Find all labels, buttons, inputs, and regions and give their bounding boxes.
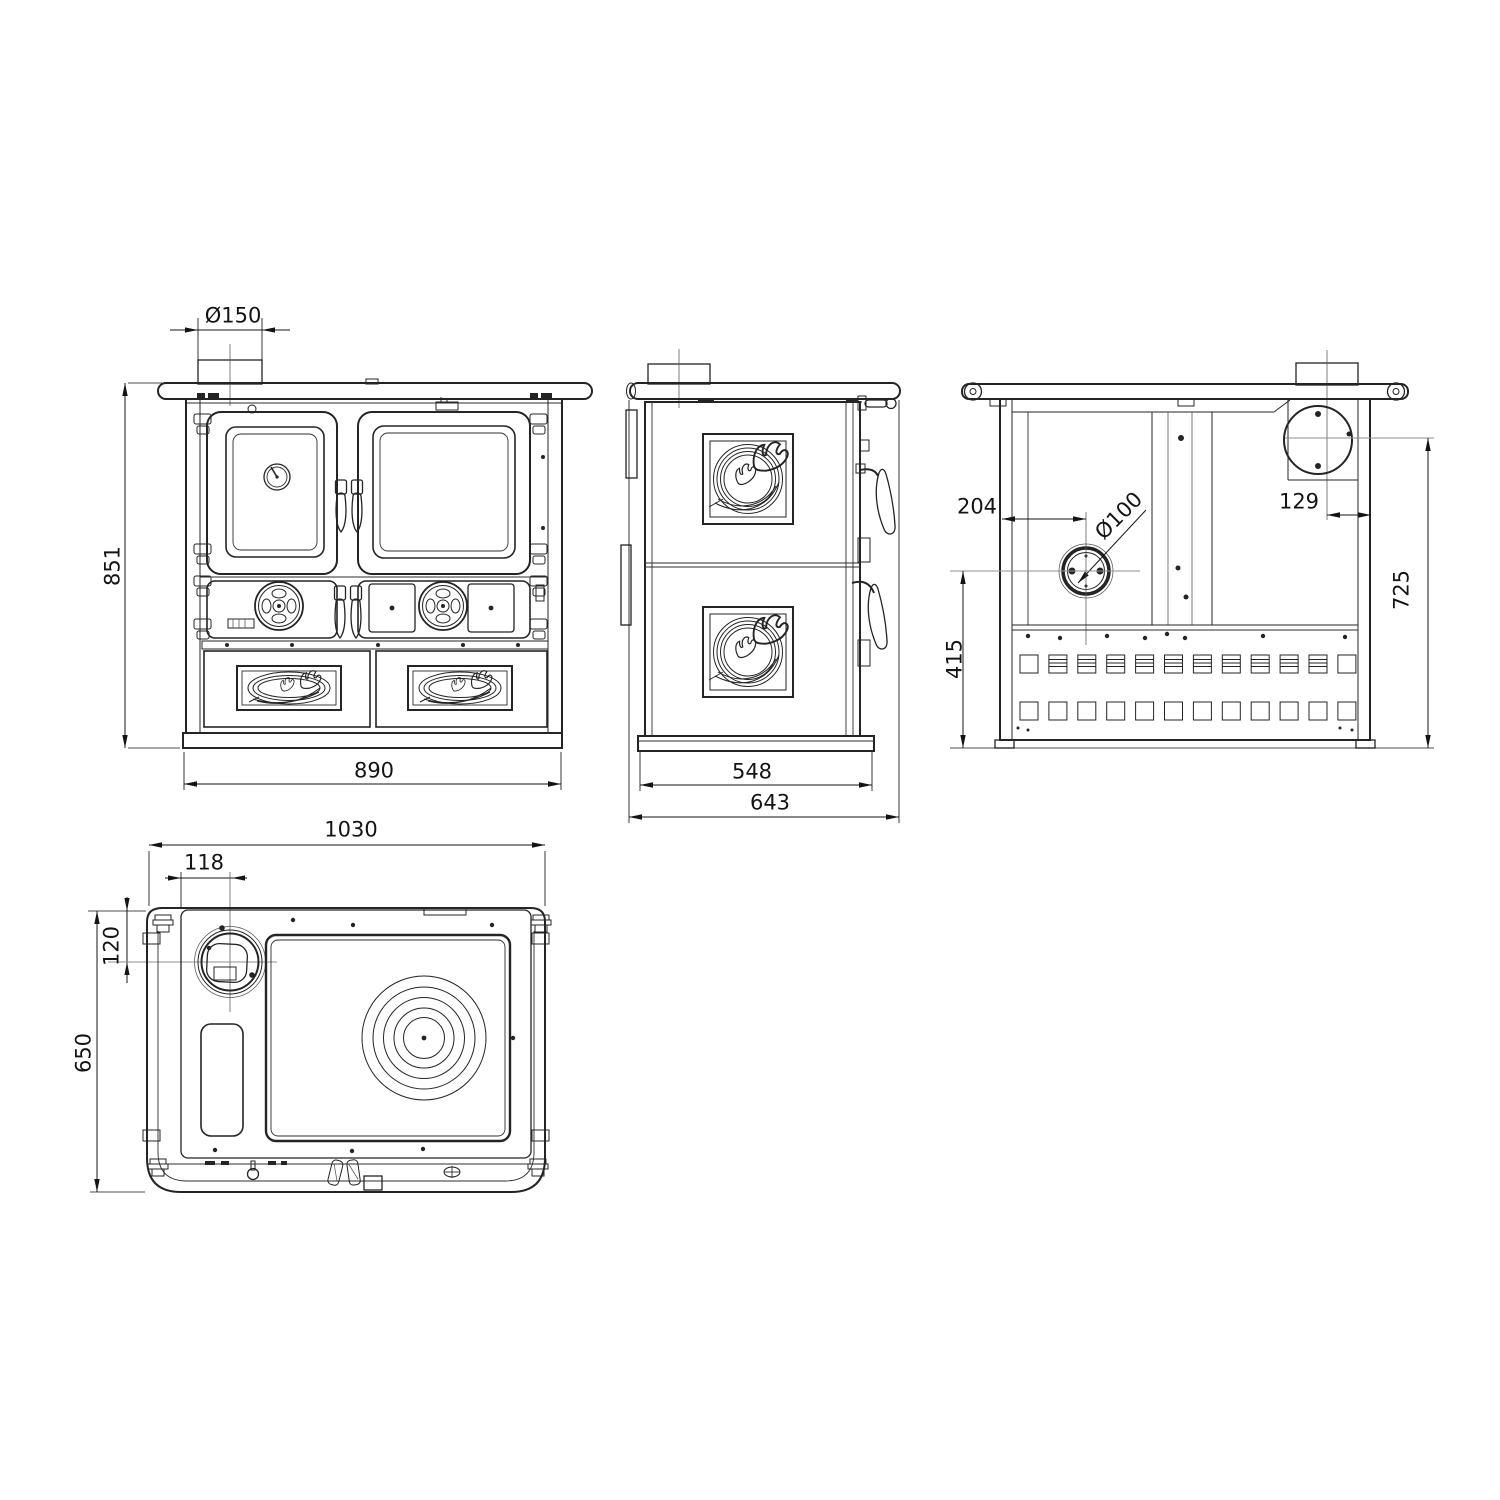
dim-label-top-overall-depth: 650 [74, 1033, 95, 1073]
dim-label-rear-flue-center-height: 725 [1392, 570, 1413, 610]
dim-label-top-overall-width: 1030 [324, 820, 377, 841]
dim-label-front-flue-diameter: Ø150 [205, 306, 262, 327]
dim-label-rear-outlet-center-height: 415 [945, 639, 966, 679]
stove-drawing [0, 0, 1500, 1500]
dim-label-front-overall-height: 851 [103, 546, 124, 586]
dim-label-front-overall-width: 890 [354, 761, 394, 782]
dim-label-rear-outlet-offset: 204 [957, 497, 997, 518]
front-view [125, 318, 592, 790]
technical-drawing-canvas: Ø150 851 890 548 643 204 Ø100 129 725 41… [0, 0, 1500, 1500]
dim-label-top-flue-offset-x: 118 [184, 853, 224, 874]
rear-view [950, 350, 1434, 748]
top-view [88, 845, 551, 1192]
side-view [621, 349, 900, 823]
dim-label-side-overall-depth: 643 [750, 793, 790, 814]
dim-label-top-flue-offset-y: 120 [102, 926, 123, 966]
dim-label-side-body-depth: 548 [732, 762, 772, 783]
dim-label-rear-flue-offset: 129 [1279, 492, 1319, 513]
